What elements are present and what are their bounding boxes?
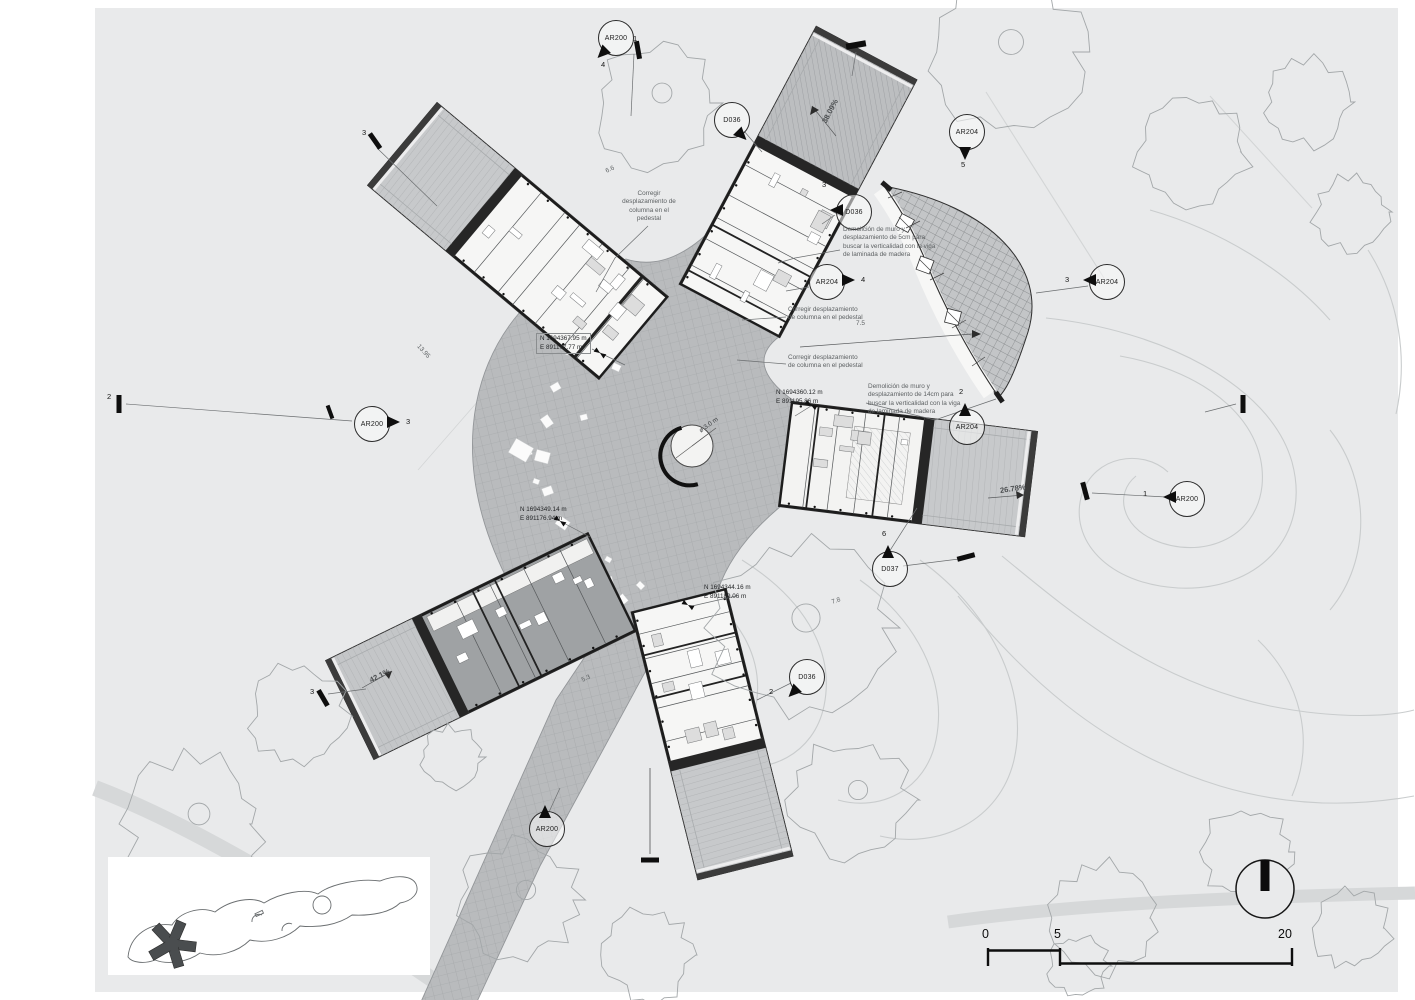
north-arrow-icon [1236,860,1294,918]
key-plan-inset [108,857,430,975]
site-plan-page: ø 3.0 m AR200 4 D036 D036 3 AR204 5 AR20… [0,0,1415,1000]
site-plan-drawing [0,0,1415,1000]
